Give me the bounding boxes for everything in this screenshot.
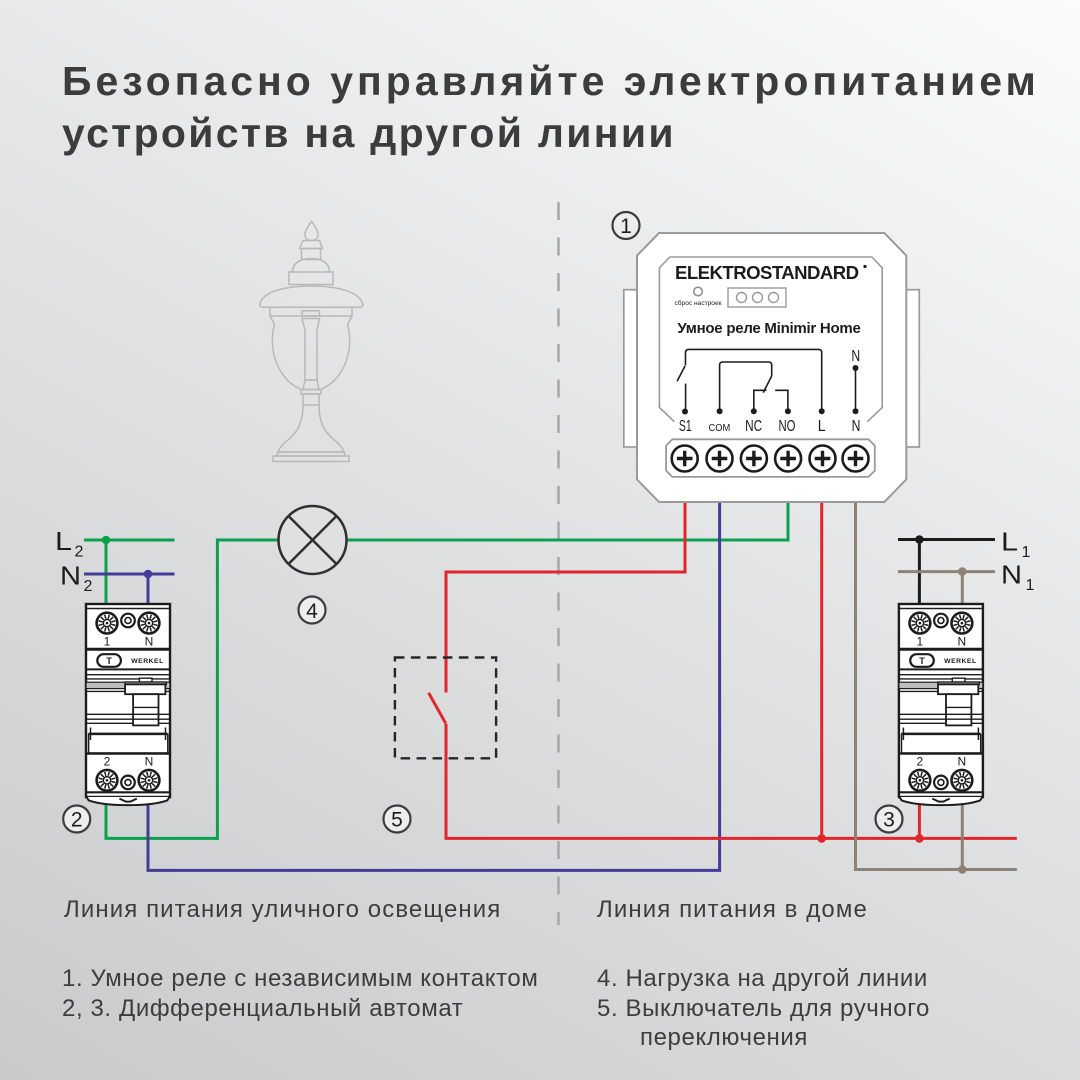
svg-text:5: 5 xyxy=(391,809,403,832)
svg-text:N: N xyxy=(60,561,81,591)
svg-text:1: 1 xyxy=(1022,544,1031,561)
svg-text:4: 4 xyxy=(306,600,318,623)
svg-text:L: L xyxy=(818,418,826,435)
svg-text:3: 3 xyxy=(883,809,895,832)
svg-text:N: N xyxy=(1001,560,1022,590)
svg-text:Умное реле Minimir Home: Умное реле Minimir Home xyxy=(677,320,860,337)
svg-text:1: 1 xyxy=(620,215,632,238)
svg-text:COM: COM xyxy=(709,423,731,434)
svg-text:сброс настроек: сброс настроек xyxy=(674,299,721,307)
svg-text:L: L xyxy=(55,526,72,556)
svg-text:ELEKTROSTANDARD: ELEKTROSTANDARD xyxy=(675,262,859,283)
svg-text:2: 2 xyxy=(84,578,93,595)
svg-text:N: N xyxy=(852,418,861,435)
svg-text:N: N xyxy=(851,348,860,365)
svg-text:L: L xyxy=(1001,527,1018,557)
svg-text:S1: S1 xyxy=(679,418,692,435)
svg-text:NC: NC xyxy=(745,418,762,435)
svg-text:2: 2 xyxy=(75,544,84,561)
svg-text:2: 2 xyxy=(71,809,83,832)
svg-text:1: 1 xyxy=(1026,577,1035,594)
svg-text:NO: NO xyxy=(779,418,796,435)
